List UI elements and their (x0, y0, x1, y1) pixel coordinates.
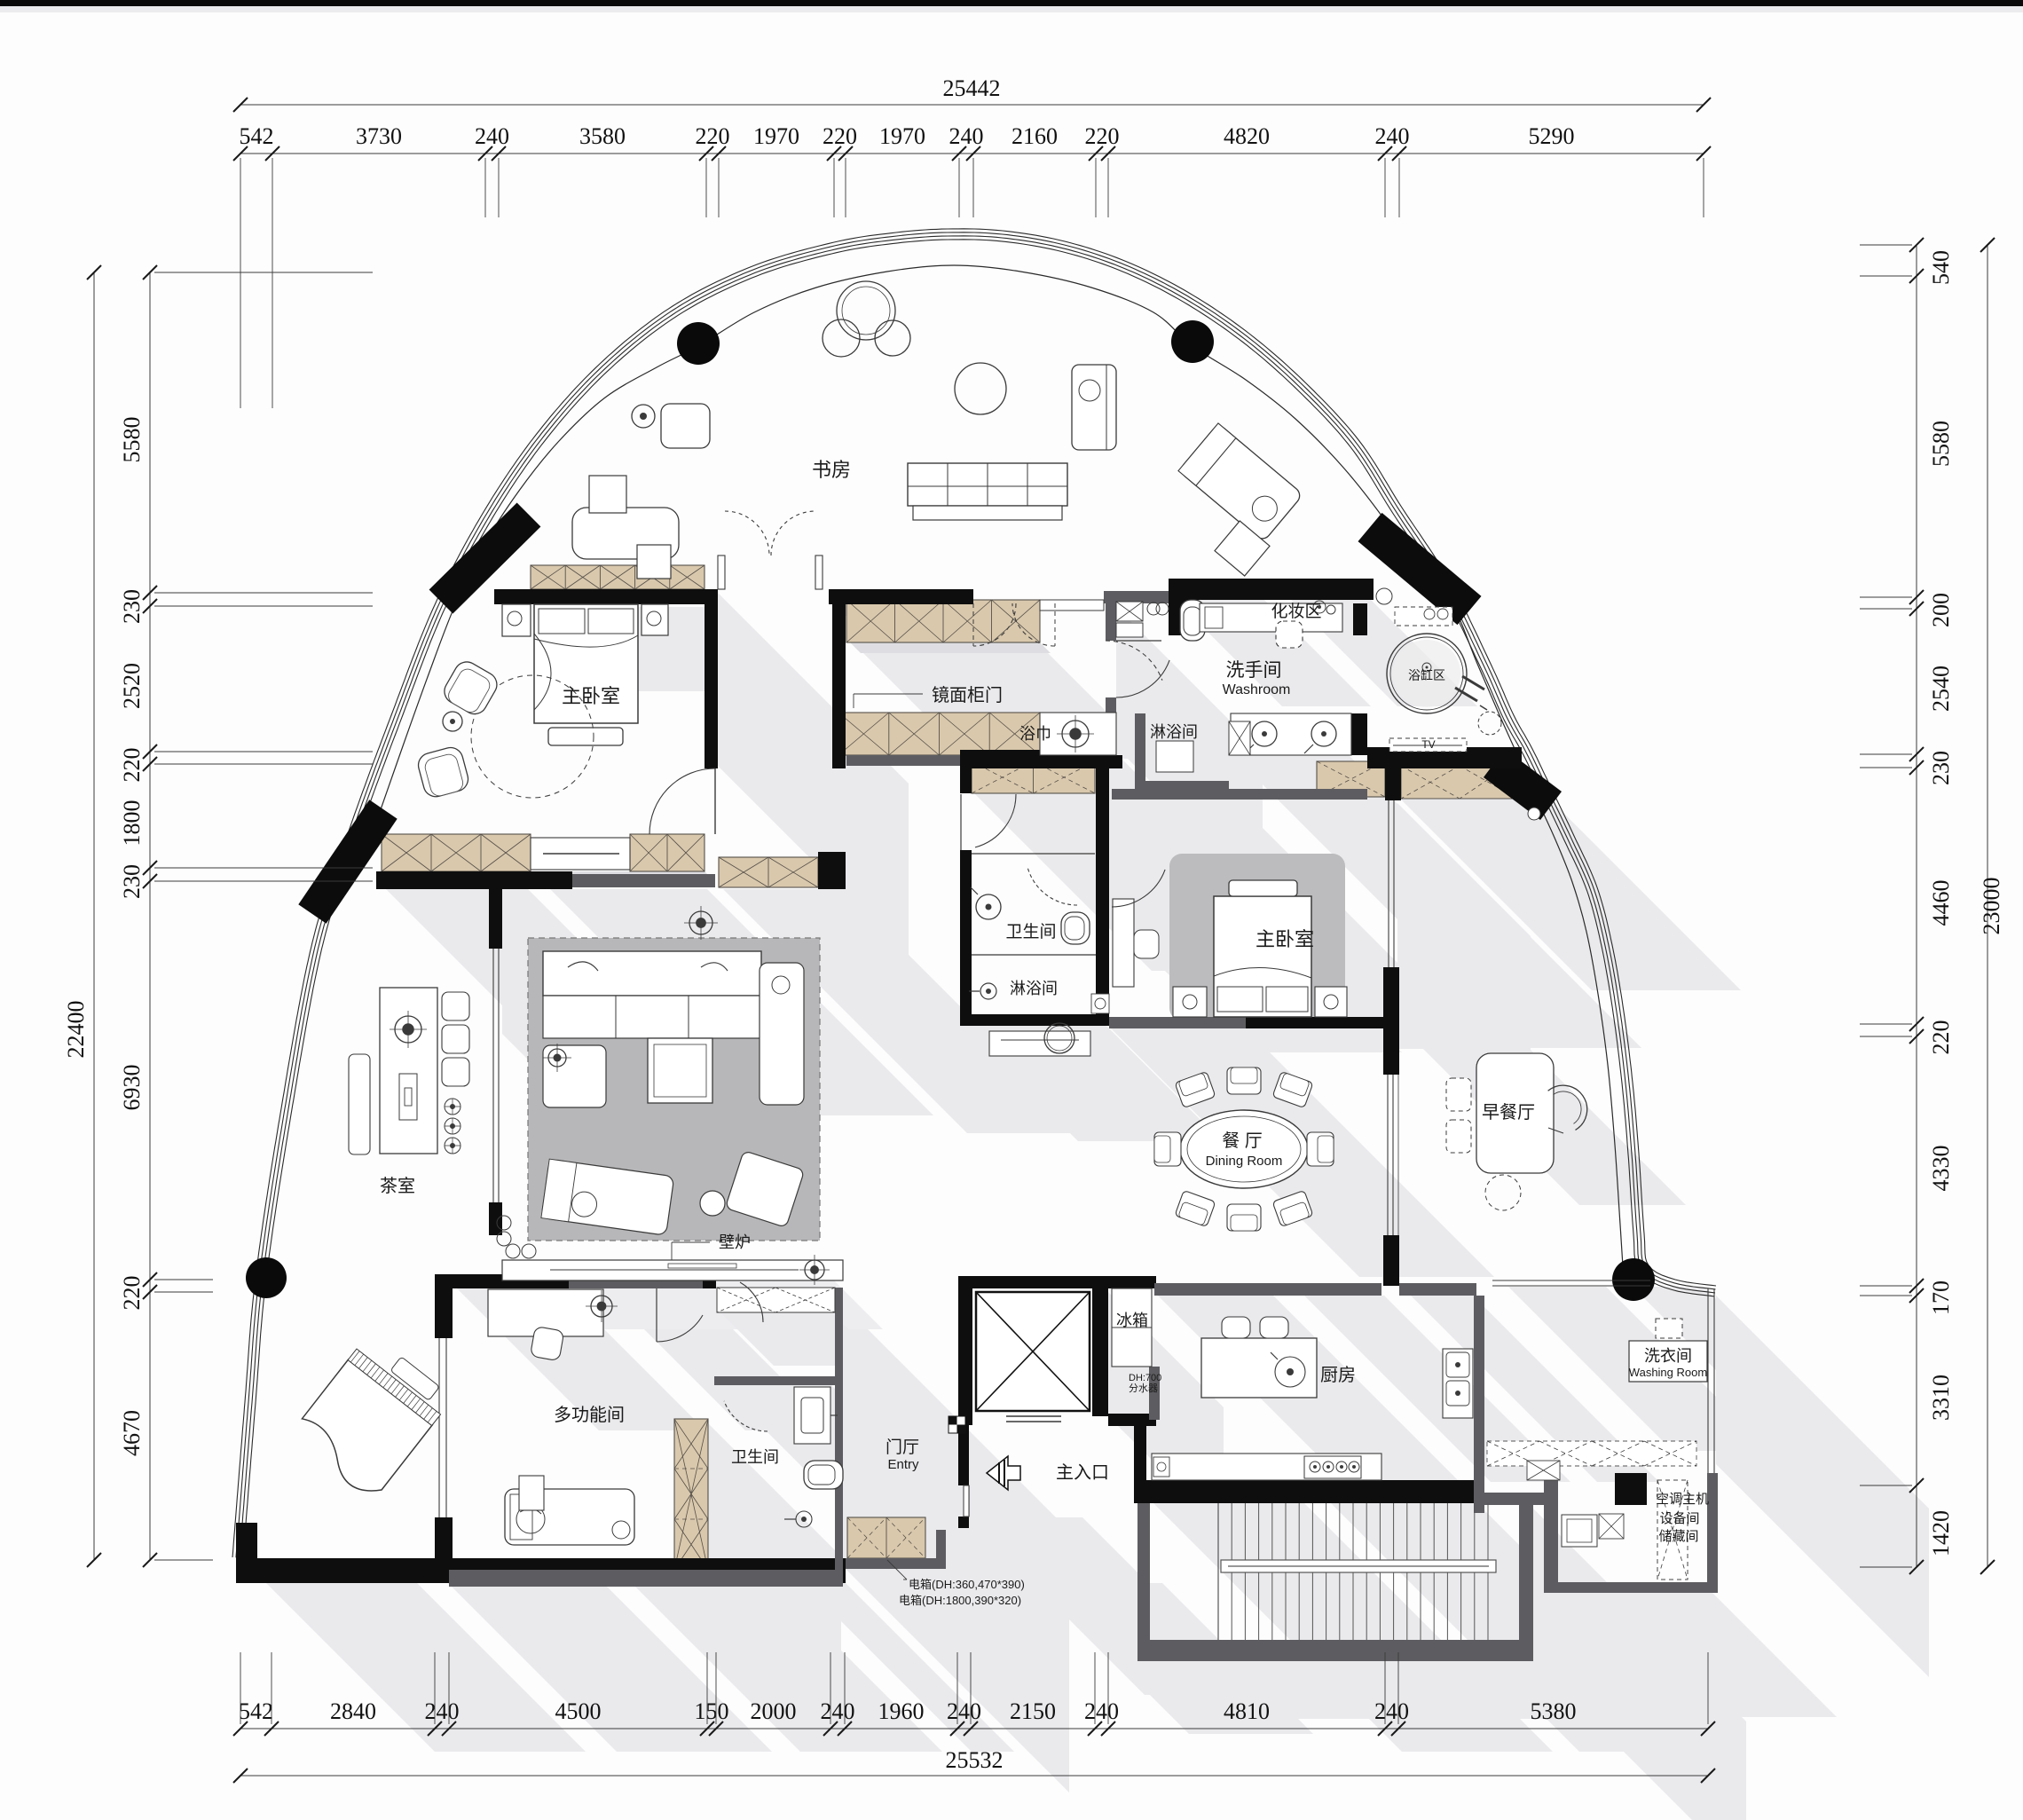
svg-text:化妆区: 化妆区 (1271, 602, 1321, 621)
svg-text:2540: 2540 (1928, 666, 1954, 712)
svg-text:240: 240 (1374, 1698, 1409, 1724)
svg-text:220: 220 (119, 1276, 145, 1311)
svg-text:230: 230 (119, 864, 145, 899)
svg-text:5580: 5580 (119, 417, 145, 463)
svg-text:镜面柜门: 镜面柜门 (932, 685, 1003, 705)
svg-text:3310: 3310 (1928, 1375, 1954, 1421)
svg-text:Washroom: Washroom (1223, 682, 1291, 697)
svg-text:卫生间: 卫生间 (731, 1448, 779, 1466)
svg-text:多功能间: 多功能间 (554, 1405, 625, 1425)
svg-text:壁炉: 壁炉 (719, 1233, 751, 1251)
svg-text:1970: 1970 (879, 123, 925, 149)
svg-text:240: 240 (949, 123, 984, 149)
svg-text:4820: 4820 (1224, 123, 1270, 149)
svg-text:22400: 22400 (63, 1001, 89, 1059)
svg-text:200: 200 (1928, 593, 1954, 627)
svg-text:4810: 4810 (1224, 1698, 1270, 1724)
svg-text:2840: 2840 (330, 1698, 376, 1724)
svg-text:Entry: Entry (887, 1457, 919, 1472)
svg-text:170: 170 (1928, 1280, 1954, 1315)
svg-text:淋浴间: 淋浴间 (1010, 980, 1058, 997)
svg-text:厨房: 厨房 (1320, 1365, 1356, 1385)
svg-text:3580: 3580 (579, 123, 626, 149)
svg-text:电箱(DH:1800,390*320): 电箱(DH:1800,390*320) (899, 1594, 1021, 1607)
svg-text:4460: 4460 (1928, 880, 1954, 926)
svg-text:240: 240 (947, 1698, 981, 1724)
svg-text:浴巾: 浴巾 (1019, 725, 1051, 743)
svg-text:240: 240 (425, 1698, 460, 1724)
svg-text:冰箱: 冰箱 (1116, 1312, 1148, 1329)
svg-text:卫生间: 卫生间 (1005, 922, 1056, 942)
svg-text:2160: 2160 (1011, 123, 1058, 149)
svg-text:TV: TV (1421, 738, 1435, 751)
svg-text:电箱(DH:360,470*390): 电箱(DH:360,470*390) (909, 1578, 1025, 1591)
svg-text:门厅: 门厅 (886, 1438, 919, 1457)
svg-text:3730: 3730 (356, 123, 402, 149)
svg-text:4670: 4670 (119, 1410, 145, 1456)
svg-text:4330: 4330 (1928, 1146, 1954, 1192)
svg-text:1420: 1420 (1928, 1510, 1954, 1556)
svg-text:542: 542 (239, 1698, 273, 1724)
svg-text:Dining Room: Dining Room (1206, 1154, 1283, 1169)
svg-text:1960: 1960 (878, 1698, 925, 1724)
svg-text:早餐厅: 早餐厅 (1482, 1102, 1535, 1123)
svg-text:25442: 25442 (943, 75, 1001, 101)
svg-text:2150: 2150 (1010, 1698, 1056, 1724)
svg-text:220: 220 (696, 123, 730, 149)
svg-text:240: 240 (475, 123, 509, 149)
svg-text:淋浴间: 淋浴间 (1150, 723, 1198, 741)
svg-text:2000: 2000 (751, 1698, 797, 1724)
svg-text:230: 230 (1928, 751, 1954, 785)
svg-text:餐 厅: 餐 厅 (1222, 1131, 1263, 1151)
svg-text:主入口: 主入口 (1056, 1462, 1109, 1483)
svg-text:空调主机: 空调主机 (1656, 1492, 1709, 1507)
svg-text:240: 240 (1084, 1698, 1119, 1724)
svg-text:5290: 5290 (1529, 123, 1575, 149)
svg-text:240: 240 (1375, 123, 1410, 149)
svg-text:浴缸区: 浴缸区 (1408, 668, 1445, 682)
svg-text:储藏间: 储藏间 (1658, 1529, 1698, 1544)
svg-text:书房: 书房 (812, 459, 851, 481)
svg-text:主卧室: 主卧室 (1256, 928, 1314, 950)
svg-text:4500: 4500 (555, 1698, 602, 1724)
svg-text:25532: 25532 (946, 1747, 1004, 1773)
svg-text:220: 220 (119, 748, 145, 783)
svg-text:220: 220 (823, 123, 857, 149)
svg-text:1970: 1970 (753, 123, 799, 149)
svg-text:220: 220 (1085, 123, 1120, 149)
svg-text:2520: 2520 (119, 663, 145, 709)
svg-text:150: 150 (695, 1698, 729, 1724)
svg-text:1800: 1800 (119, 800, 145, 847)
svg-text:5380: 5380 (1531, 1698, 1577, 1724)
svg-text:DH:700: DH:700 (1129, 1373, 1161, 1383)
svg-text:茶室: 茶室 (380, 1176, 415, 1196)
svg-text:分水器: 分水器 (1129, 1383, 1158, 1394)
svg-text:主卧室: 主卧室 (562, 685, 620, 707)
svg-text:542: 542 (240, 123, 274, 149)
svg-text:Washing Room: Washing Room (1629, 1366, 1707, 1379)
svg-text:540: 540 (1928, 250, 1954, 285)
svg-text:设备间: 设备间 (1659, 1511, 1699, 1526)
svg-text:5580: 5580 (1928, 421, 1954, 467)
svg-text:23000: 23000 (1979, 878, 2004, 935)
svg-text:6930: 6930 (119, 1065, 145, 1111)
svg-text:240: 240 (821, 1698, 855, 1724)
svg-text:230: 230 (119, 589, 145, 624)
svg-text:220: 220 (1928, 1020, 1954, 1055)
svg-text:洗衣间: 洗衣间 (1644, 1347, 1692, 1365)
svg-text:洗手间: 洗手间 (1226, 660, 1282, 681)
